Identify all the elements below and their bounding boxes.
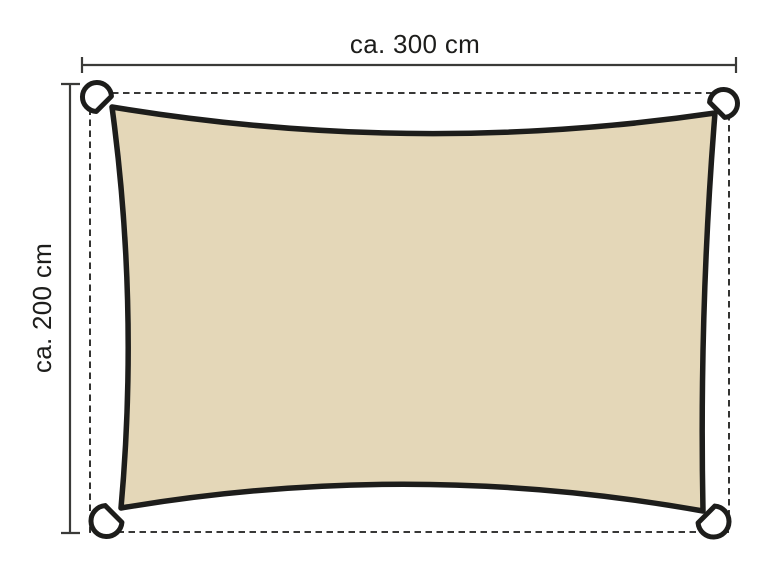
sail-diagram-canvas: ca. 300 cm ca. 200 cm (0, 0, 772, 579)
height-dimension-label: ca. 200 cm (27, 243, 57, 373)
height-dimension-line (61, 84, 80, 533)
width-dimension-line (82, 57, 736, 73)
width-dimension: ca. 300 cm (82, 29, 736, 73)
sail-shape (112, 107, 715, 511)
sail-diagram: ca. 300 cm ca. 200 cm (0, 0, 772, 579)
height-dimension: ca. 200 cm (27, 84, 80, 533)
corner-ring-top-left (76, 76, 114, 114)
width-dimension-label: ca. 300 cm (350, 29, 480, 59)
